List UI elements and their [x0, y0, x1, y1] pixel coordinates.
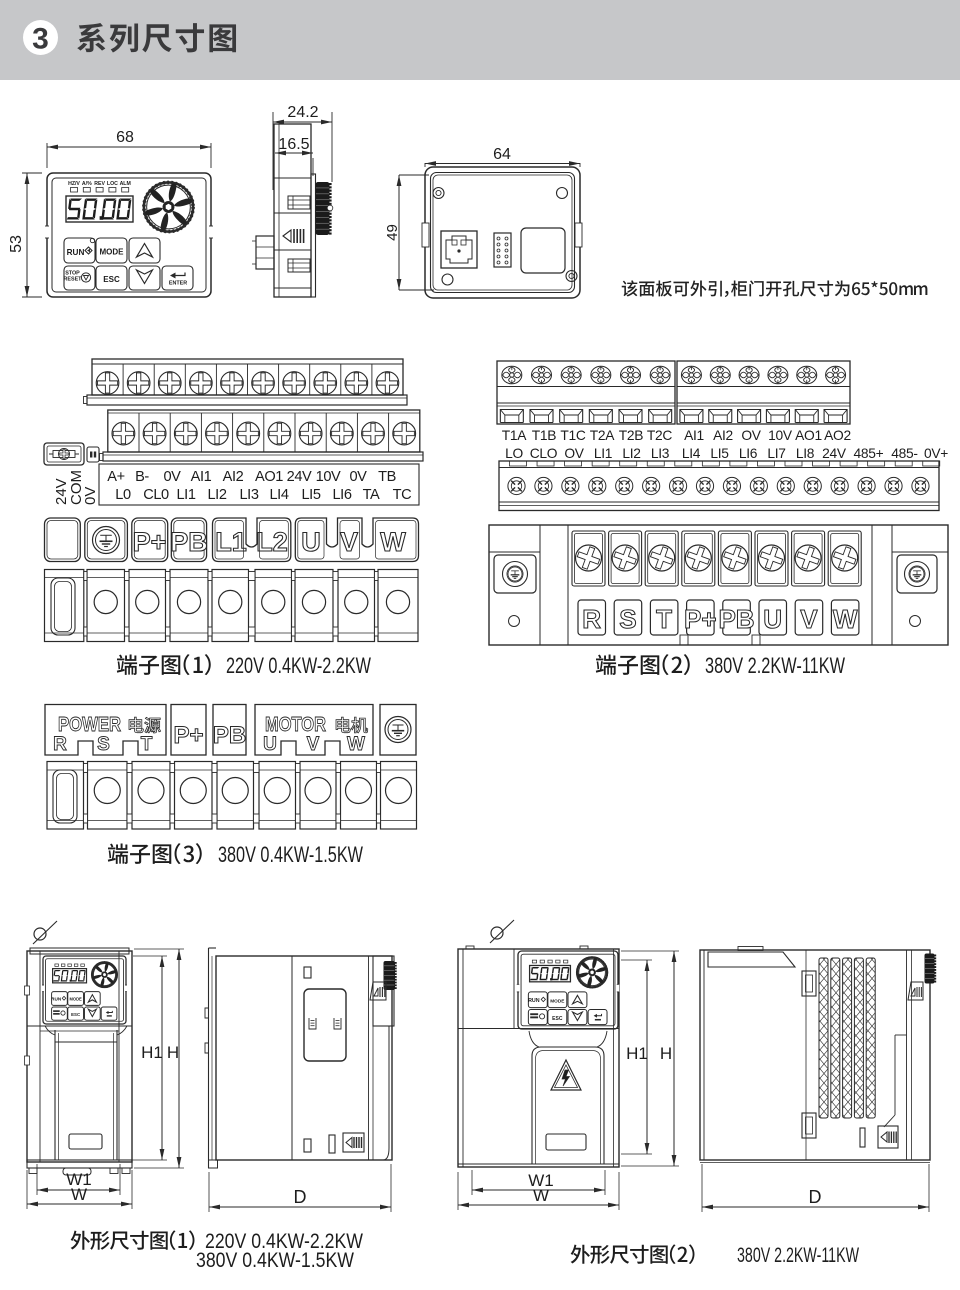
- svg-text:D: D: [294, 1187, 307, 1207]
- svg-text:H1: H1: [141, 1043, 163, 1062]
- svg-text:B-: B-: [135, 469, 149, 485]
- svg-text:LO: LO: [505, 446, 523, 461]
- svg-text:U: U: [301, 527, 321, 557]
- svg-text:REV: REV: [94, 181, 105, 187]
- svg-text:U: U: [263, 734, 277, 755]
- svg-text:PB: PB: [170, 527, 208, 557]
- svg-text:220V 0.4KW-2.2KW: 220V 0.4KW-2.2KW: [226, 653, 372, 678]
- svg-text:OV: OV: [741, 428, 761, 443]
- svg-text:RESET: RESET: [64, 277, 83, 283]
- svg-text:LI7: LI7: [767, 446, 785, 461]
- svg-text:24V: 24V: [822, 446, 847, 461]
- svg-text:MODE: MODE: [69, 997, 82, 1002]
- svg-text:W: W: [347, 734, 365, 755]
- svg-text:TB: TB: [378, 469, 396, 485]
- svg-text:LI5: LI5: [301, 487, 320, 503]
- svg-text:68: 68: [116, 129, 134, 146]
- svg-text:LI4: LI4: [269, 487, 288, 503]
- svg-text:10V: 10V: [768, 428, 793, 443]
- svg-text:AO2: AO2: [824, 428, 851, 443]
- svg-text:485-: 485-: [891, 446, 917, 461]
- svg-text:TA: TA: [363, 487, 380, 503]
- svg-text:V: V: [307, 734, 320, 755]
- svg-text:T: T: [656, 604, 672, 634]
- svg-text:T1A: T1A: [502, 428, 528, 443]
- svg-text:W: W: [533, 1186, 549, 1205]
- svg-text:380V 2.2KW-11KW: 380V 2.2KW-11KW: [705, 653, 846, 678]
- svg-text:ESC: ESC: [103, 275, 120, 284]
- svg-text:0V: 0V: [349, 469, 367, 485]
- svg-text:ENTER: ENTER: [169, 281, 187, 287]
- svg-text:LI6: LI6: [332, 487, 351, 503]
- svg-text:MOTOR: MOTOR: [265, 714, 326, 736]
- svg-text:10V: 10V: [316, 469, 341, 485]
- svg-text:380V 0.4KW-1.5KW: 380V 0.4KW-1.5KW: [218, 842, 364, 867]
- svg-text:16.5: 16.5: [278, 136, 309, 153]
- svg-text:CLO: CLO: [530, 446, 558, 461]
- svg-text:0V: 0V: [82, 487, 99, 505]
- svg-text:T2A: T2A: [590, 428, 616, 443]
- svg-text:LI3: LI3: [239, 487, 258, 503]
- svg-text:L1: L1: [215, 527, 247, 557]
- svg-text:RUN: RUN: [51, 996, 62, 1001]
- svg-text:L0: L0: [115, 487, 131, 503]
- svg-text:TC: TC: [393, 487, 412, 503]
- svg-text:53: 53: [8, 235, 25, 253]
- svg-text:P+: P+: [684, 604, 717, 634]
- svg-text:RUN: RUN: [528, 998, 540, 1004]
- svg-text:H1: H1: [626, 1044, 648, 1063]
- svg-text:LI8: LI8: [796, 446, 815, 461]
- svg-text:ESC: ESC: [71, 1012, 81, 1017]
- svg-text:PB: PB: [718, 604, 754, 634]
- svg-text:V: V: [800, 604, 818, 634]
- svg-text:AO1: AO1: [255, 469, 283, 485]
- svg-text:L2: L2: [256, 527, 288, 557]
- svg-text:64: 64: [493, 146, 511, 163]
- svg-text:LI1: LI1: [594, 446, 612, 461]
- svg-text:R: R: [582, 604, 601, 634]
- svg-text:S: S: [619, 604, 636, 634]
- svg-text:T1B: T1B: [532, 428, 557, 443]
- svg-text:24.2: 24.2: [287, 104, 318, 121]
- svg-text:0V: 0V: [163, 469, 181, 485]
- svg-text:AO1: AO1: [795, 428, 822, 443]
- svg-text:R: R: [53, 734, 67, 755]
- svg-text:OV: OV: [564, 446, 584, 461]
- svg-text:T1C: T1C: [560, 428, 586, 443]
- svg-text:D: D: [809, 1187, 822, 1207]
- svg-text:AI1: AI1: [684, 428, 704, 443]
- svg-text:H: H: [167, 1043, 179, 1062]
- svg-text:T2C: T2C: [647, 428, 673, 443]
- svg-text:LI1: LI1: [176, 487, 195, 503]
- svg-text:LI3: LI3: [651, 446, 670, 461]
- svg-text:3: 3: [32, 23, 49, 56]
- svg-text:T2B: T2B: [619, 428, 644, 443]
- svg-text:H: H: [660, 1044, 672, 1063]
- svg-text:AI1: AI1: [191, 469, 212, 485]
- svg-text:LI4: LI4: [682, 446, 701, 461]
- svg-text:ALM: ALM: [120, 181, 131, 187]
- svg-text:380V 0.4KW-1.5KW: 380V 0.4KW-1.5KW: [196, 1248, 355, 1272]
- svg-text:V: V: [340, 527, 358, 557]
- svg-text:LI2: LI2: [207, 487, 226, 503]
- svg-text:LOC: LOC: [107, 181, 118, 187]
- svg-text:380V 2.2KW-11KW: 380V 2.2KW-11KW: [737, 1243, 859, 1267]
- svg-text:PB: PB: [213, 722, 246, 749]
- svg-text:POWER: POWER: [58, 714, 121, 736]
- svg-text:CL0: CL0: [143, 487, 169, 503]
- svg-text:24V: 24V: [287, 469, 312, 485]
- svg-text:485+: 485+: [854, 446, 884, 461]
- svg-text:LI2: LI2: [622, 446, 640, 461]
- svg-text:AI2: AI2: [223, 469, 244, 485]
- svg-text:S: S: [97, 734, 110, 755]
- svg-text:LI5: LI5: [710, 446, 729, 461]
- svg-text:ESC: ESC: [552, 1016, 563, 1022]
- svg-text:U: U: [763, 604, 782, 634]
- svg-text:A/%: A/%: [82, 181, 92, 187]
- svg-text:W: W: [71, 1185, 87, 1204]
- svg-text:MODE: MODE: [100, 248, 125, 257]
- svg-text:T: T: [141, 734, 153, 755]
- svg-text:P+: P+: [173, 722, 203, 749]
- svg-text:RUN: RUN: [67, 248, 85, 257]
- svg-text:49: 49: [384, 224, 401, 241]
- svg-text:HZ/V: HZ/V: [68, 181, 80, 187]
- svg-text:A+: A+: [107, 469, 124, 485]
- svg-text:0V+: 0V+: [924, 446, 948, 461]
- svg-text:P+: P+: [133, 527, 167, 557]
- svg-text:W: W: [380, 527, 406, 557]
- svg-text:LI6: LI6: [739, 446, 758, 461]
- svg-text:W: W: [833, 604, 858, 634]
- svg-text:AI2: AI2: [713, 428, 733, 443]
- svg-text:MODE: MODE: [550, 998, 564, 1003]
